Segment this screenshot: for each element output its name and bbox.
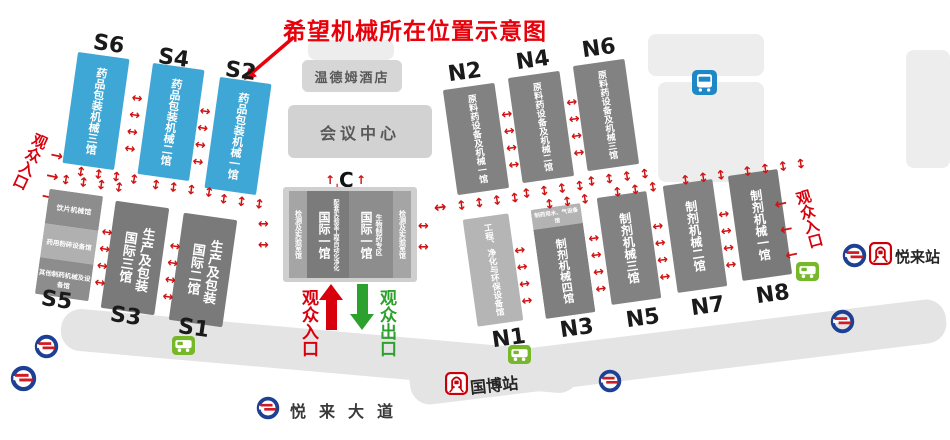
hall-n1-name: 工程、净化与环保设备馆	[482, 223, 503, 317]
hall-s4-name: 药品包装机械二馆	[159, 78, 182, 167]
flow-arrow: ↔	[433, 199, 448, 216]
station-guobo-label: 国博站	[469, 370, 519, 399]
entrance-right-label: 观众入口	[793, 188, 823, 250]
station-yuelai-label: 悦来站	[895, 246, 940, 267]
metro-logo-icon	[10, 365, 37, 392]
hall-code-n3: N3	[559, 316, 595, 342]
center-intl-right-sub: 生物制药专区	[375, 214, 382, 256]
hall-code-n2: N2	[447, 60, 483, 86]
flow-arrows: ↔↔	[418, 220, 429, 254]
hall-n2: 原料药设备及机械一馆	[443, 83, 509, 195]
bus-station-icon	[692, 70, 717, 95]
hall-n6-name: 原料药设备及机械三馆	[595, 70, 616, 160]
center-lab-right: 检测及实验室馆	[393, 191, 411, 278]
center-intl-left-sub: 配套实验室工程自动化净化	[332, 199, 338, 271]
hall-s5: 饮片机械馆 药用粉碎设备馆 其他制药机械及设备馆	[35, 189, 103, 301]
entrance-left-label: 观众入口	[10, 131, 49, 192]
hall-code-n5: N5	[625, 306, 661, 332]
hall-n2-name: 原料药设备及机械一馆	[465, 94, 486, 184]
bus-stop-icon	[796, 262, 819, 281]
center-lab-left: 检测及实验室馆	[289, 191, 307, 278]
metro-logo-icon	[256, 396, 280, 420]
hall-n1: 工程、净化与环保设备馆	[463, 213, 524, 326]
venue-map: 希望机械所在位置示意图 S6 S4 S2 药品包装机械三馆 药品包装机械二馆 药…	[0, 0, 950, 440]
hall-s6-name: 药品包装机械三馆	[84, 67, 107, 156]
hall-code-s3: S3	[109, 304, 143, 330]
center-lab-left-text: 检测及实验室馆	[295, 210, 302, 259]
hall-n3-body: 制剂机械四馆	[533, 223, 595, 319]
yuelai-avenue-label: 悦来大道	[290, 398, 406, 422]
conference-center-building: 会议中心	[288, 105, 432, 158]
entrance-center-label: 观众入口	[299, 289, 316, 357]
center-hall: 检测及实验室馆 国际一馆 配套实验室工程自动化净化 国际一馆 生物制药专区 检测…	[289, 191, 411, 278]
metro-logo-icon	[830, 309, 855, 334]
exit-arrow-down-icon	[349, 284, 375, 330]
map-title: 希望机械所在位置示意图	[283, 12, 547, 46]
hall-s3: 国际三馆 生产及包装	[101, 201, 170, 315]
hall-n4-name: 原料药设备及机械二馆	[530, 82, 551, 172]
flow-arrows: ↕↕↕	[217, 193, 265, 212]
hotel-building: 温德姆酒店	[302, 60, 402, 92]
center-intl-hall-right: 国际一馆 生物制药专区	[349, 191, 393, 278]
center-intl-hall-left: 国际一馆 配套实验室工程自动化净化	[307, 191, 349, 278]
hall-n3-name: 制剂机械四馆	[554, 237, 574, 304]
hall-n3: 制药用水、气设备馆 制剂机械四馆	[531, 203, 596, 319]
hall-n7: 制剂机械二馆	[663, 179, 728, 293]
flow-arrows: ↕↕↕↕	[455, 192, 521, 214]
bus-stop-icon	[172, 336, 195, 355]
rail-station-icon	[445, 372, 468, 395]
hall-s2: 药品包装机械一馆	[204, 77, 271, 195]
hall-s6: 药品包装机械三馆	[62, 52, 129, 170]
bus-stop-icon	[508, 345, 531, 364]
center-intl-left-text: 国际一馆	[318, 211, 330, 259]
background-building	[906, 50, 950, 168]
hall-code-n6: N6	[581, 36, 617, 62]
hall-n8-name: 制剂机械一馆	[749, 189, 771, 262]
hall-code-n7: N7	[690, 294, 726, 320]
hall-n7-name: 制剂机械二馆	[684, 200, 706, 273]
hall-code-s5: S5	[40, 288, 74, 314]
center-intl-right-text: 国际一馆	[360, 211, 372, 259]
hall-s2-name: 药品包装机械一馆	[226, 92, 249, 181]
entrance-arrow-up-icon	[318, 284, 344, 330]
hall-n5-name: 制剂机械三馆	[618, 212, 640, 285]
flow-arrow: ↑	[356, 174, 366, 186]
metro-logo-icon	[34, 334, 59, 359]
metro-logo-icon	[842, 243, 867, 268]
metro-logo-icon	[598, 369, 622, 393]
hall-code-n8: N8	[755, 282, 791, 308]
rail-station-icon	[869, 242, 892, 265]
center-lab-right-text: 检测及实验室馆	[399, 210, 406, 259]
exit-center-label: 观众出口	[377, 289, 394, 357]
hall-s1: 国际二馆 生产及包装	[169, 213, 238, 327]
hall-code-n4: N4	[515, 48, 551, 74]
flow-arrows: ↔↔	[258, 218, 269, 252]
